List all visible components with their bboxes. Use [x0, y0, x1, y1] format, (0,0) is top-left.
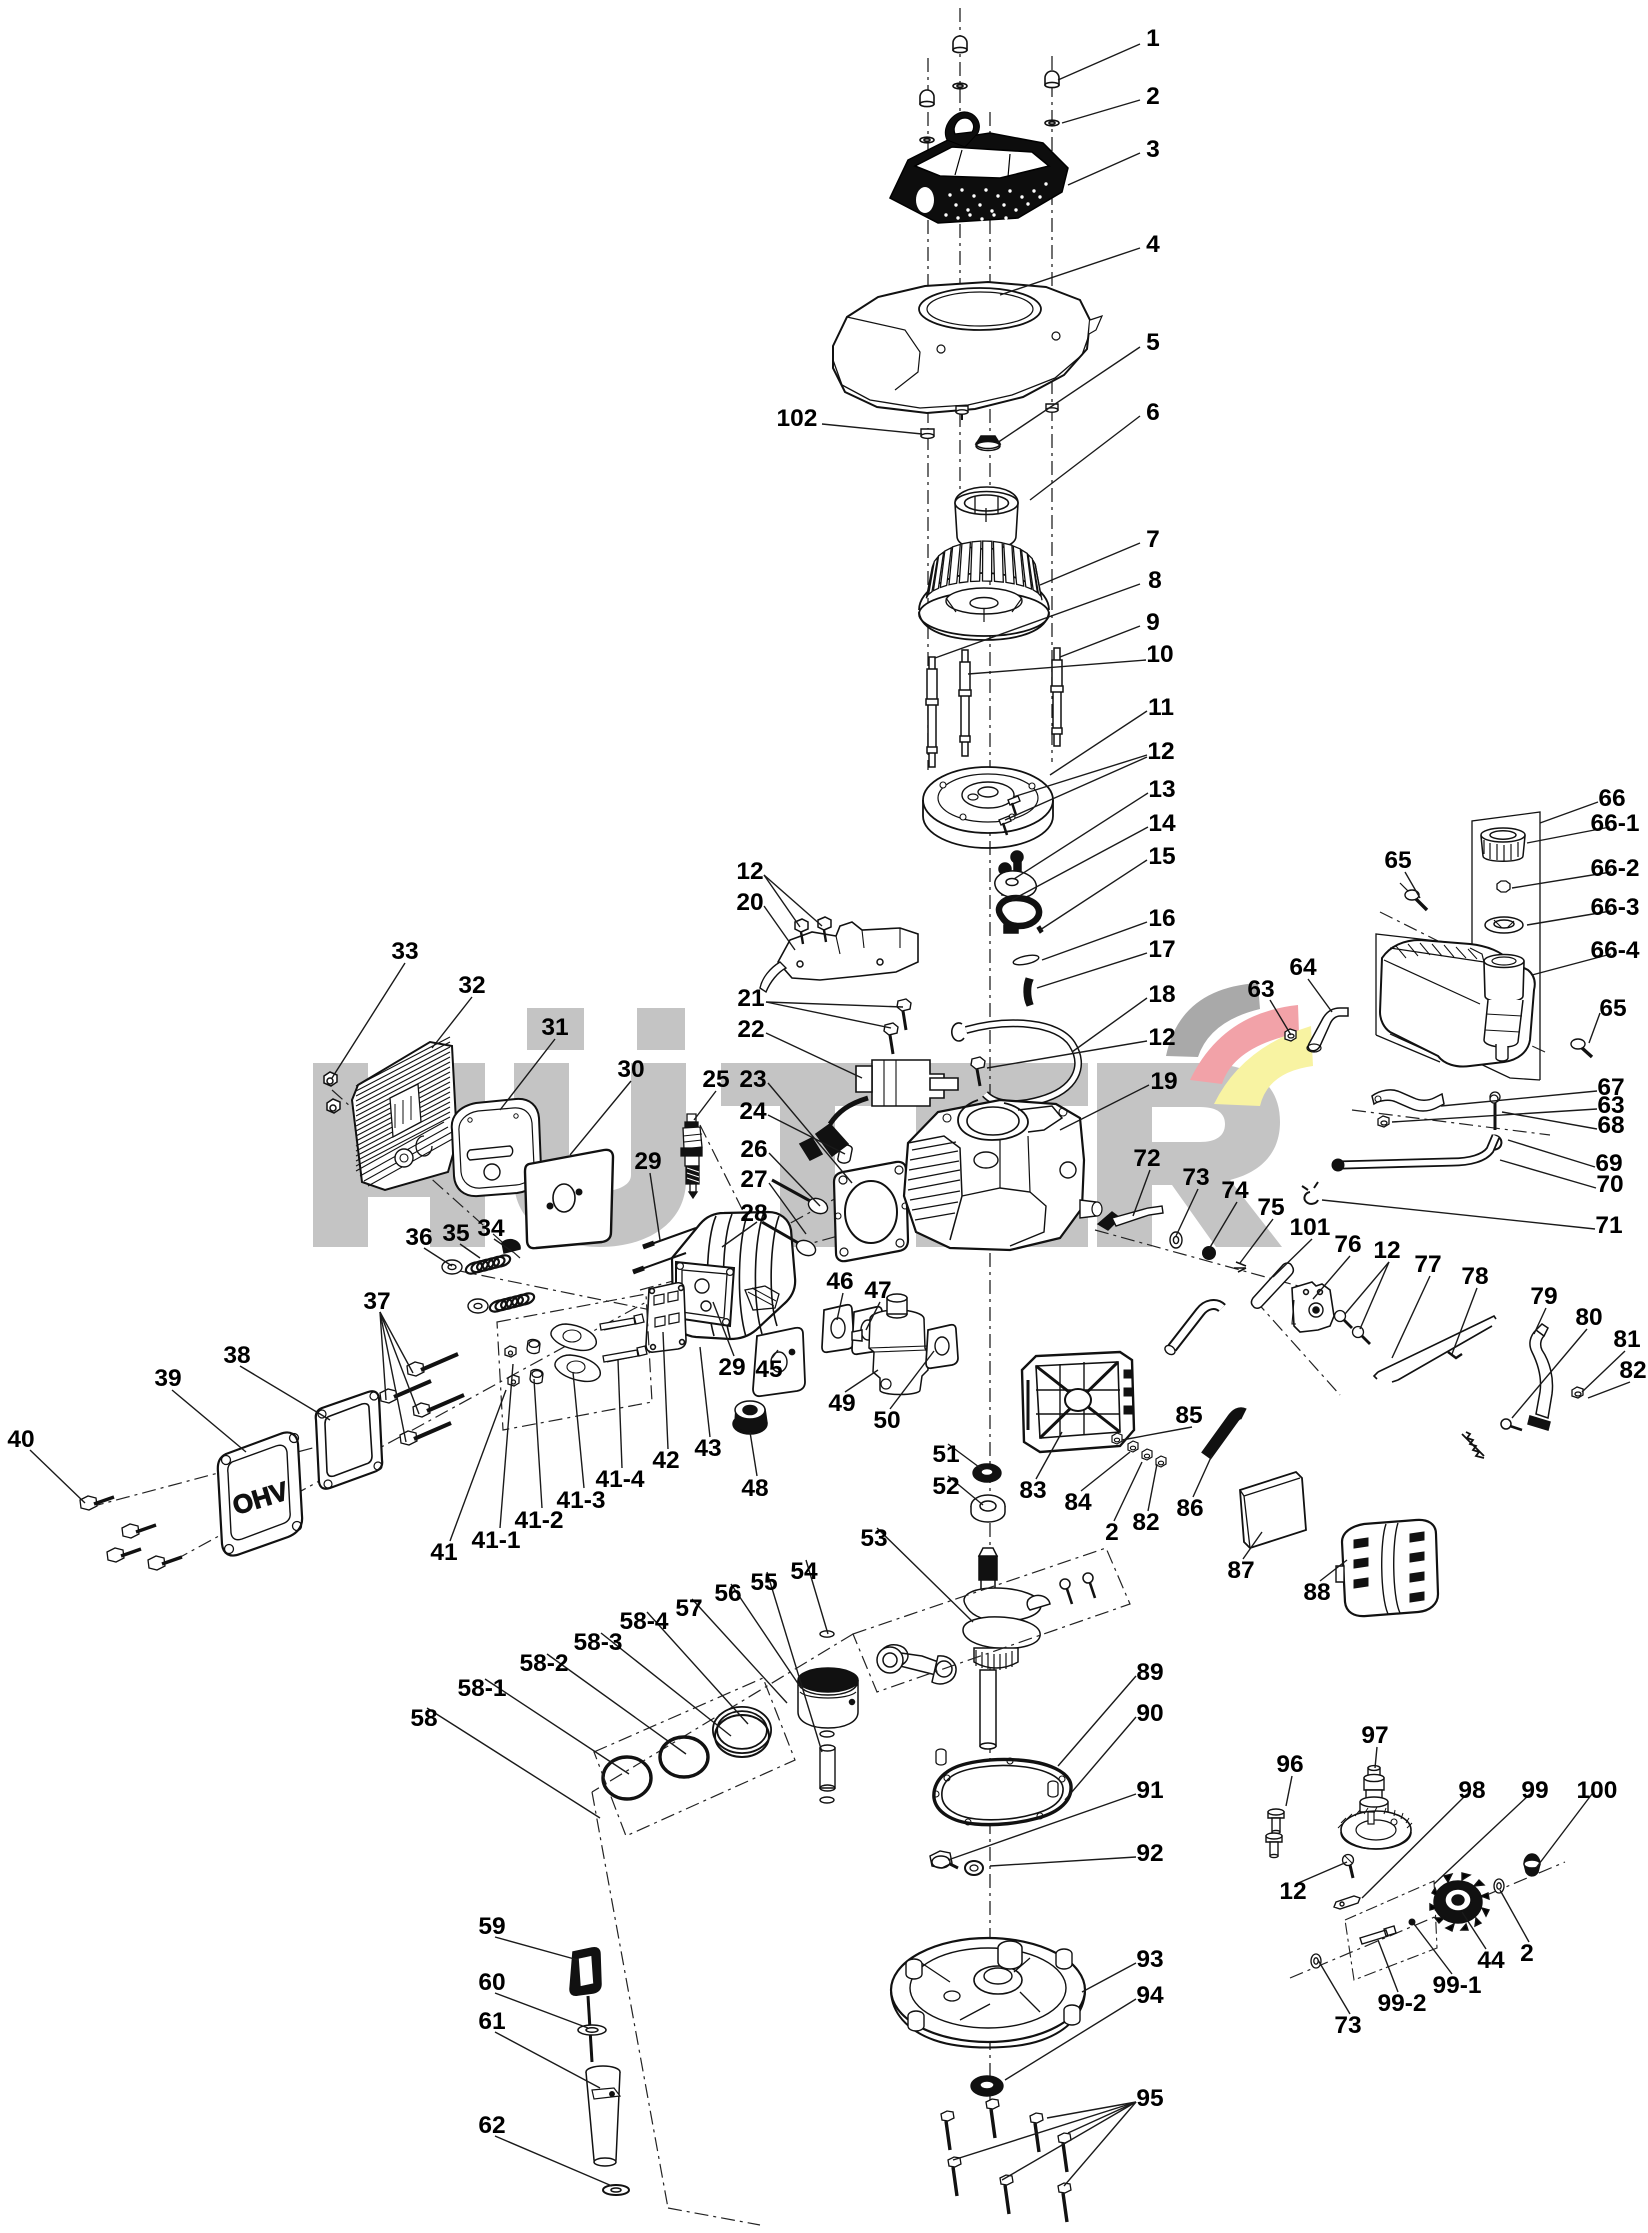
svg-text:88: 88: [1303, 1579, 1330, 1606]
svg-text:20: 20: [736, 889, 763, 916]
svg-text:26: 26: [740, 1136, 767, 1163]
svg-text:58-3: 58-3: [573, 1629, 622, 1656]
svg-text:78: 78: [1461, 1263, 1488, 1290]
svg-text:24: 24: [739, 1098, 767, 1125]
svg-text:19: 19: [1150, 1068, 1177, 1095]
svg-text:100: 100: [1577, 1777, 1618, 1804]
svg-text:12: 12: [1279, 1878, 1306, 1905]
svg-text:27: 27: [740, 1166, 767, 1193]
svg-text:53: 53: [860, 1525, 887, 1552]
svg-text:12: 12: [1147, 738, 1174, 765]
svg-text:74: 74: [1221, 1177, 1249, 1204]
svg-text:32: 32: [458, 972, 485, 999]
svg-text:48: 48: [741, 1475, 768, 1502]
svg-text:76: 76: [1334, 1231, 1361, 1258]
svg-text:91: 91: [1136, 1777, 1163, 1804]
svg-text:79: 79: [1530, 1283, 1557, 1310]
svg-text:49: 49: [828, 1390, 855, 1417]
svg-text:39: 39: [154, 1365, 181, 1392]
svg-text:9: 9: [1146, 609, 1160, 636]
svg-text:21: 21: [737, 985, 764, 1012]
svg-text:75: 75: [1257, 1194, 1284, 1221]
svg-text:99: 99: [1521, 1777, 1548, 1804]
svg-text:64: 64: [1289, 954, 1317, 981]
svg-text:81: 81: [1613, 1326, 1640, 1353]
svg-text:18: 18: [1148, 981, 1175, 1008]
svg-text:46: 46: [826, 1268, 853, 1295]
svg-text:87: 87: [1227, 1557, 1254, 1584]
svg-text:16: 16: [1148, 905, 1175, 932]
svg-text:44: 44: [1477, 1947, 1505, 1974]
svg-text:65: 65: [1384, 847, 1411, 874]
svg-text:29: 29: [718, 1354, 745, 1381]
svg-text:66-4: 66-4: [1590, 937, 1639, 964]
svg-text:62: 62: [478, 2112, 505, 2139]
svg-text:47: 47: [864, 1277, 891, 1304]
svg-text:72: 72: [1133, 1145, 1160, 1172]
svg-text:92: 92: [1136, 1840, 1163, 1867]
svg-text:3: 3: [1146, 136, 1160, 163]
svg-text:94: 94: [1136, 1982, 1164, 2009]
svg-text:96: 96: [1276, 1751, 1303, 1778]
svg-text:17: 17: [1148, 936, 1175, 963]
svg-text:84: 84: [1064, 1489, 1092, 1516]
svg-text:54: 54: [790, 1558, 818, 1585]
svg-text:101: 101: [1290, 1214, 1331, 1241]
svg-text:45: 45: [755, 1356, 782, 1383]
svg-text:71: 71: [1595, 1212, 1622, 1239]
svg-text:77: 77: [1414, 1251, 1441, 1278]
svg-text:2: 2: [1105, 1519, 1119, 1546]
svg-text:12: 12: [1373, 1237, 1400, 1264]
svg-text:98: 98: [1458, 1777, 1485, 1804]
svg-text:30: 30: [617, 1056, 644, 1083]
svg-text:13: 13: [1148, 776, 1175, 803]
svg-text:41-1: 41-1: [471, 1527, 520, 1554]
svg-text:6: 6: [1146, 399, 1160, 426]
svg-text:42: 42: [652, 1447, 679, 1474]
svg-text:29: 29: [634, 1148, 661, 1175]
svg-text:73: 73: [1182, 1164, 1209, 1191]
svg-text:82: 82: [1619, 1357, 1646, 1384]
svg-text:60: 60: [478, 1969, 505, 1996]
svg-text:12: 12: [736, 858, 763, 885]
svg-text:73: 73: [1334, 2012, 1361, 2039]
svg-text:99-1: 99-1: [1432, 1972, 1481, 1999]
svg-text:40: 40: [7, 1426, 34, 1453]
svg-text:70: 70: [1596, 1171, 1623, 1198]
svg-text:31: 31: [541, 1014, 568, 1041]
svg-text:58: 58: [410, 1705, 437, 1732]
svg-text:58-2: 58-2: [519, 1650, 568, 1677]
svg-text:66: 66: [1598, 785, 1625, 812]
svg-text:58-1: 58-1: [457, 1675, 506, 1702]
svg-text:38: 38: [223, 1342, 250, 1369]
svg-text:66-3: 66-3: [1590, 894, 1639, 921]
svg-text:4: 4: [1146, 231, 1160, 258]
svg-text:22: 22: [737, 1016, 764, 1043]
svg-text:36: 36: [405, 1224, 432, 1251]
svg-text:11: 11: [1148, 694, 1174, 721]
svg-text:14: 14: [1148, 810, 1176, 837]
svg-text:52: 52: [932, 1473, 959, 1500]
svg-text:41: 41: [430, 1539, 457, 1566]
svg-text:65: 65: [1599, 995, 1626, 1022]
svg-text:8: 8: [1148, 567, 1162, 594]
svg-text:43: 43: [694, 1435, 721, 1462]
svg-text:66-2: 66-2: [1590, 855, 1639, 882]
svg-text:58-4: 58-4: [619, 1608, 668, 1635]
svg-text:99-2: 99-2: [1377, 1990, 1426, 2017]
svg-text:55: 55: [750, 1569, 777, 1596]
svg-text:93: 93: [1136, 1946, 1163, 1973]
svg-text:50: 50: [873, 1407, 900, 1434]
svg-text:89: 89: [1136, 1659, 1163, 1686]
svg-text:66-1: 66-1: [1590, 810, 1639, 837]
svg-text:1: 1: [1146, 25, 1160, 52]
svg-text:83: 83: [1019, 1477, 1046, 1504]
svg-text:90: 90: [1136, 1700, 1163, 1727]
svg-text:33: 33: [391, 938, 418, 965]
svg-text:80: 80: [1575, 1304, 1602, 1331]
svg-text:57: 57: [675, 1595, 702, 1622]
svg-text:59: 59: [478, 1913, 505, 1940]
svg-text:86: 86: [1176, 1495, 1203, 1522]
svg-text:63: 63: [1247, 976, 1274, 1003]
svg-text:95: 95: [1136, 2085, 1163, 2112]
svg-text:85: 85: [1175, 1402, 1202, 1429]
svg-text:5: 5: [1146, 329, 1160, 356]
svg-text:34: 34: [477, 1215, 505, 1242]
svg-text:7: 7: [1146, 526, 1160, 553]
svg-text:82: 82: [1132, 1509, 1159, 1536]
svg-text:37: 37: [363, 1288, 390, 1315]
svg-text:68: 68: [1597, 1112, 1624, 1139]
svg-text:51: 51: [932, 1441, 959, 1468]
svg-text:41-4: 41-4: [595, 1466, 644, 1493]
svg-text:28: 28: [740, 1200, 767, 1227]
svg-text:25: 25: [702, 1066, 729, 1093]
svg-text:2: 2: [1146, 83, 1160, 110]
svg-text:102: 102: [777, 405, 818, 432]
svg-text:23: 23: [739, 1066, 766, 1093]
svg-text:56: 56: [714, 1580, 741, 1607]
svg-text:35: 35: [442, 1220, 469, 1247]
svg-text:61: 61: [478, 2008, 505, 2035]
svg-text:2: 2: [1520, 1940, 1534, 1967]
svg-text:10: 10: [1146, 641, 1173, 668]
svg-text:12: 12: [1148, 1024, 1175, 1051]
svg-text:15: 15: [1148, 843, 1175, 870]
svg-text:97: 97: [1361, 1722, 1388, 1749]
